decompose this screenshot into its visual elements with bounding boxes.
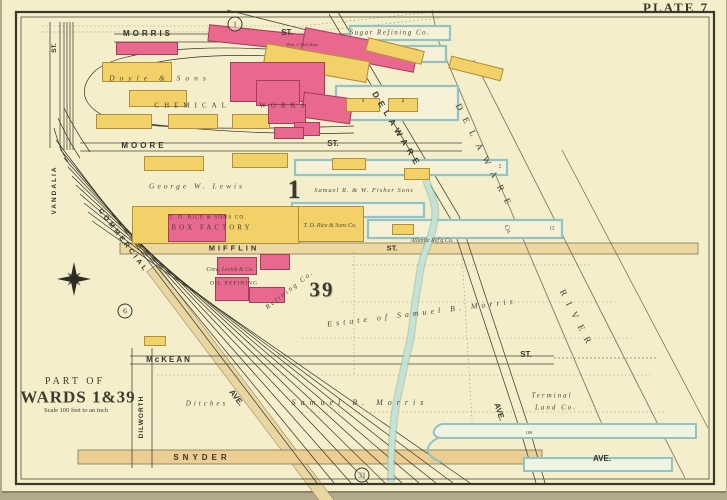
adjoining-plate-ref: 1: [228, 17, 243, 32]
street-mckean-suffix: ST.: [520, 351, 532, 359]
owner-doyle: Doyle & Sons: [109, 74, 211, 82]
street-snyder: SNYDER: [173, 454, 230, 462]
owner-ditches: Ditches: [186, 401, 228, 408]
owner-atlantic: Atlantic Ref'g Co.: [411, 238, 454, 244]
compass-rose: [57, 262, 91, 296]
owner-crew-levick: Crew, Levick & Co.: [206, 267, 253, 273]
plate-number: PLATE 7: [643, 0, 709, 16]
title-scale: Scale 100 feet to an inch: [44, 408, 108, 415]
street-vandalia-suffix: ST.: [52, 43, 59, 52]
adjoining-plate-ref: 31: [355, 468, 370, 483]
ward-number-39: 39: [310, 278, 335, 303]
building: [144, 336, 166, 346]
owner-terminal-2: Land Co.: [535, 405, 577, 412]
building: [168, 114, 218, 129]
ward-number-1: 1: [288, 175, 301, 205]
owner-box-factory: BOX FACTORY: [171, 225, 252, 232]
owner-sugar-refining: Sugar Refining Co.: [350, 30, 431, 37]
building: [404, 168, 430, 180]
street-dilworth: DILWORTH: [139, 396, 146, 439]
pier-building: [392, 224, 414, 235]
building: [116, 42, 178, 55]
canal-measure: 100: [526, 431, 533, 436]
owner-oil-refining: OIL REFINING: [210, 281, 258, 287]
owner-fisher: Samuel R. & W. Fisher Sons: [314, 188, 414, 195]
owner-rice-lumber: T. D. Rice & Sons Co.: [304, 223, 357, 229]
building: [96, 114, 152, 129]
building: [274, 127, 304, 139]
owner-rice-name: T. D. RICE & SONS CO.: [169, 215, 246, 221]
pier-building: 2: [388, 98, 418, 112]
building: [232, 114, 270, 129]
street-mifflin-suffix: ST.: [387, 244, 398, 252]
adjoining-plate-ref: 6: [118, 304, 133, 319]
street-morris-suffix: ST.: [281, 29, 293, 37]
owner-chemical-works: CHEMICAL WORKS: [154, 103, 309, 110]
street-mifflin: MIFFLIN: [209, 244, 260, 252]
street-mckean: McKEAN: [146, 356, 192, 364]
building: [232, 153, 288, 168]
owner-lewis: George W. Lewis: [149, 182, 245, 190]
street-moore-suffix: ST.: [327, 140, 339, 148]
building: [144, 156, 204, 171]
scanned-atlas-page: { "plate": {"label": "PLATE 7", "ref_top…: [0, 0, 727, 500]
map-sheet: 1 2 PLATE 7 1 6 31 PART OF WARDS 1&39 Sc…: [2, 0, 726, 491]
building: [332, 158, 366, 170]
title-part-of: PART OF: [45, 377, 105, 387]
owner-morris-estate-south: Samuel B. Morris: [292, 399, 429, 407]
pier-number: 2: [499, 165, 502, 170]
street-snyder-suffix: AVE.: [593, 455, 611, 463]
street-morris: MORRIS: [123, 30, 173, 38]
owner-mccahan: Wm. J. McCahan: [286, 43, 318, 48]
title-wards: WARDS 1&39: [20, 389, 135, 406]
street-moore: MOORE: [121, 142, 166, 150]
pier-number: 12: [550, 227, 555, 232]
owner-terminal-1: Terminal: [531, 393, 572, 400]
street-vandalia: VANDALIA: [52, 165, 59, 214]
building: [260, 254, 290, 270]
